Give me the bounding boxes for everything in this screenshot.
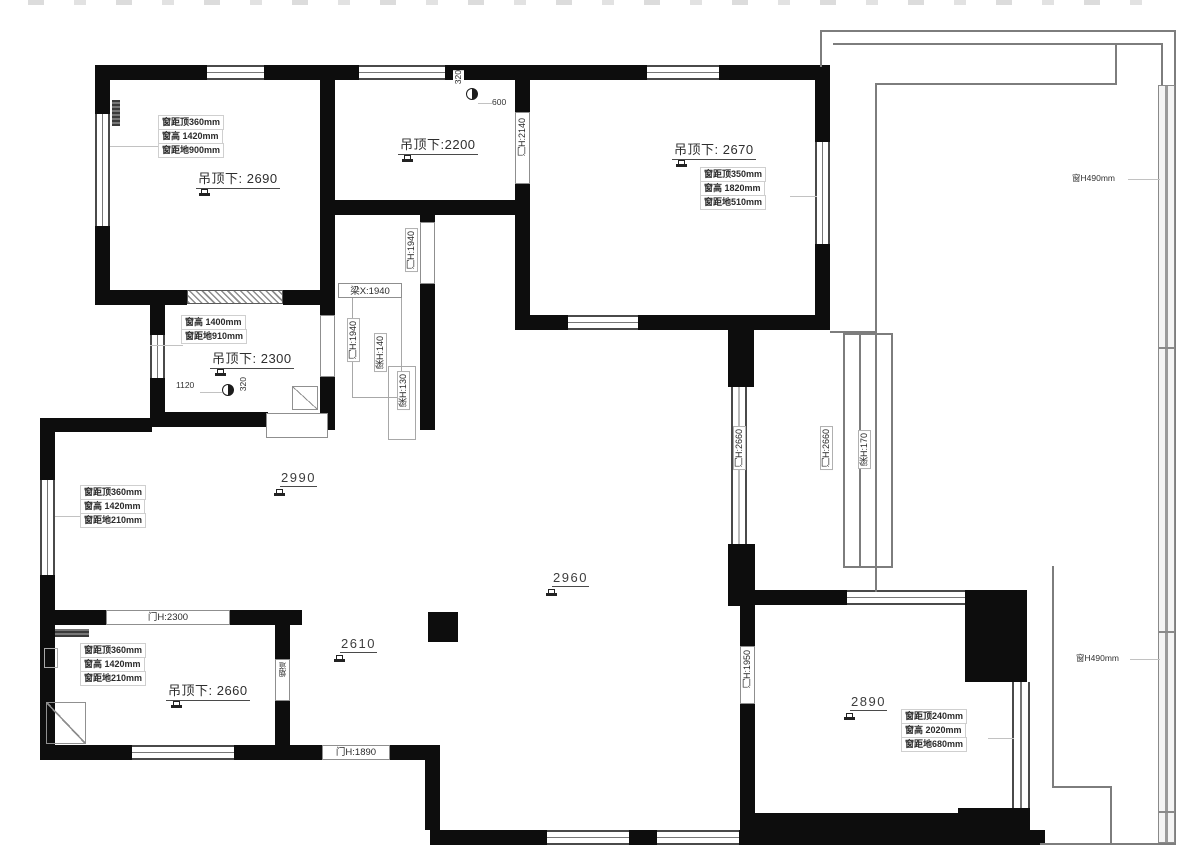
window [815,142,830,244]
balcony-line [875,568,877,592]
ceiling-height-room-b: 吊顶下:2200 [398,134,478,155]
leader-line [478,103,492,104]
window [150,335,165,378]
win-height-label: 窗高 2020mm [901,723,966,738]
wall-segment [40,418,152,432]
balcony-line [820,30,1176,32]
win-top-label: 窗距顶360mm [80,485,146,500]
balcony-line [891,333,893,568]
window-dims-kitchen: 窗距顶360mm 窗高 1420mm 窗距地210mm [80,644,146,686]
ceiling-height-mark-3: 2610 [340,636,377,653]
window [359,65,445,80]
leader-line [988,738,1014,739]
win-top-label: 窗距顶350mm [700,167,766,182]
leader-line [200,392,222,393]
window [647,65,719,80]
counter-fixture [55,629,89,637]
wall-segment [739,830,1045,845]
ceiling-height-mark-1: 2990 [280,470,317,487]
leader-line [790,196,817,197]
win-top-label: 窗距顶240mm [901,709,967,724]
window [1012,682,1030,808]
wall-segment [428,612,458,642]
window [40,480,55,575]
light-fixture-icon [222,384,234,396]
ceiling-height-room-c: 吊顶下: 2670 [672,139,756,160]
fixture-offset-dim: 1120 [176,380,194,390]
balcony-line [1115,43,1117,85]
wall-segment [530,315,568,330]
door-opening [420,222,435,284]
wall-segment [430,830,547,845]
counter-fixture [112,100,120,126]
wall-segment [420,215,435,222]
leader-line [55,516,82,517]
win-bottom-label: 窗距地210mm [80,513,146,528]
beam-height-passage: 梁H:170 [858,430,871,469]
window-dims-room-c: 窗距顶350mm 窗高 1820mm 窗距地510mm [700,168,766,210]
ceiling-marker-icon [402,155,413,162]
wall-segment [275,625,290,659]
door-height-room-b: 门H:2140 [517,118,528,156]
wall-segment [335,65,359,80]
window [568,315,638,330]
ceiling-marker-icon [546,589,557,596]
balcony-line [1161,43,1163,88]
leader-line [1128,179,1160,180]
win-height-label: 窗高 1420mm [80,499,145,514]
door-height-corridor-1: 门H:1940 [405,228,418,272]
win-top-label: 窗距顶360mm [158,115,224,130]
corner-fixture [46,702,86,744]
ceiling-height-kitchen: 吊顶下: 2660 [166,680,250,701]
wall-segment [95,290,187,305]
window-dims-room-e: 窗距顶240mm 窗高 2020mm 窗距地680mm [901,710,967,752]
window-dims-room-a: 窗距顶360mm 窗高 1420mm 窗距地900mm [158,116,224,158]
rail-height-label-2: 窗H490mm [1076,652,1119,664]
leader-line [150,345,183,346]
balcony-window [1158,632,1175,812]
win-height-label: 窗高 1420mm [80,657,145,672]
wall-segment [740,606,755,646]
fixture-offset-dim: 600 [492,97,506,107]
ceiling-marker-icon [844,713,855,720]
wall-segment [515,80,530,112]
ceiling-marker-icon [334,655,345,662]
balcony-line [875,333,877,568]
balcony-line [833,43,1163,45]
balcony-window [1158,348,1175,632]
door-height-passage-1: 门H:2660 [733,426,746,470]
win-height-label: 窗高 1820mm [700,181,765,196]
beam-label-box: 梁X:1940 [338,283,402,298]
ceiling-height-room-a: 吊顶下: 2690 [196,168,280,189]
wall-segment [335,200,520,215]
ceiling-marker-icon [171,701,182,708]
win-height-label: 窗高 1400mm [181,315,246,330]
balcony-line [1110,786,1112,845]
balcony-line [843,333,845,568]
window-dims-room-mid: 窗高 1400mm 窗距地910mm [181,316,247,344]
wall-segment [234,745,302,760]
wall-segment [815,80,830,142]
fixture-side-dim: 320 [238,377,249,391]
wall-segment [728,330,754,387]
beam-height-label-2: 梁H:130 [397,371,410,410]
floor-plan-canvas: 窗距顶360mm 窗高 1420mm 窗距地900mm 吊顶下: 2690 吊顶… [0,0,1200,860]
win-height-label: 窗高 1420mm [158,129,223,144]
fixture-side-dim: 320 [453,70,464,84]
rail-height-label-1: 窗H490mm [1072,172,1115,184]
wall-segment [264,65,335,80]
wall-segment [420,284,435,430]
wall-segment [152,412,268,427]
balcony-line [820,30,822,67]
balcony-line [875,83,1117,85]
win-top-label: 窗距顶360mm [80,643,146,658]
light-fixture-icon [466,88,478,100]
win-bottom-label: 窗距地210mm [80,671,146,686]
wall-segment [95,65,207,80]
cropped-dimension-strip [28,0,1148,5]
window [95,114,110,226]
balcony-line [830,331,875,333]
wall-segment [638,315,830,330]
win-bottom-label: 窗距地900mm [158,143,224,158]
win-bottom-label: 窗距地680mm [901,737,967,752]
door-height-passage-2: 门H:2660 [820,426,833,470]
wall-segment [755,590,847,605]
wall-segment [150,305,165,335]
balcony-window [1158,85,1175,348]
window [847,590,965,605]
door-opening [320,315,335,377]
balcony-window [1158,812,1175,843]
door-height-south: 门H:1890 [322,745,390,760]
ceiling-height-room-mid: 吊顶下: 2300 [210,348,294,369]
wall-segment [283,290,335,305]
window [132,745,234,760]
wall-segment [425,745,440,830]
ceiling-height-mark-2: 2960 [552,570,589,587]
wall-segment [40,610,106,625]
flue-label: 烟道 [277,662,288,677]
window [207,65,264,80]
ceiling-marker-icon [199,189,210,196]
door-height-kitchen: 门H:2300 [106,610,230,625]
hatched-panel [187,290,283,304]
wall-segment [719,65,830,80]
leader-line [110,146,160,147]
ceiling-height-room-e: 2890 [850,694,887,711]
leader-line [1130,659,1160,660]
door-height-room-e: 门H:1950 [742,650,753,688]
door-opening [266,413,328,438]
win-bottom-label: 窗距地510mm [700,195,766,210]
wall-segment [755,813,958,830]
wall-segment [95,80,110,114]
door-height-corridor-2: 门H:1940 [347,318,360,362]
balcony-line [875,83,877,333]
wall-segment [230,610,302,625]
wall-segment [965,590,1027,682]
window-dims-living-left: 窗距顶360mm 窗高 1420mm 窗距地210mm [80,486,146,528]
ceiling-marker-icon [215,369,226,376]
ceiling-marker-icon [676,160,687,167]
wall-segment [40,432,55,480]
win-bottom-label: 窗距地910mm [181,329,247,344]
balcony-line [843,566,893,568]
wall-segment [530,65,647,80]
balcony-line [1040,843,1176,845]
ceiling-marker-icon [274,489,285,496]
corner-fixture [292,386,318,410]
window [657,830,739,845]
wall-segment [320,80,335,315]
wall-segment [300,745,322,760]
beam-height-label-1: 梁H:140 [374,333,387,372]
wall-segment [629,830,657,845]
wall-segment [728,544,755,606]
wall-segment [740,704,755,845]
balcony-line [1052,566,1054,788]
window [547,830,629,845]
fixture-outline [44,648,58,668]
balcony-line [843,333,893,335]
wall-segment [40,745,132,760]
beam-x-label: 梁X:1940 [339,284,401,299]
balcony-line [1052,786,1112,788]
